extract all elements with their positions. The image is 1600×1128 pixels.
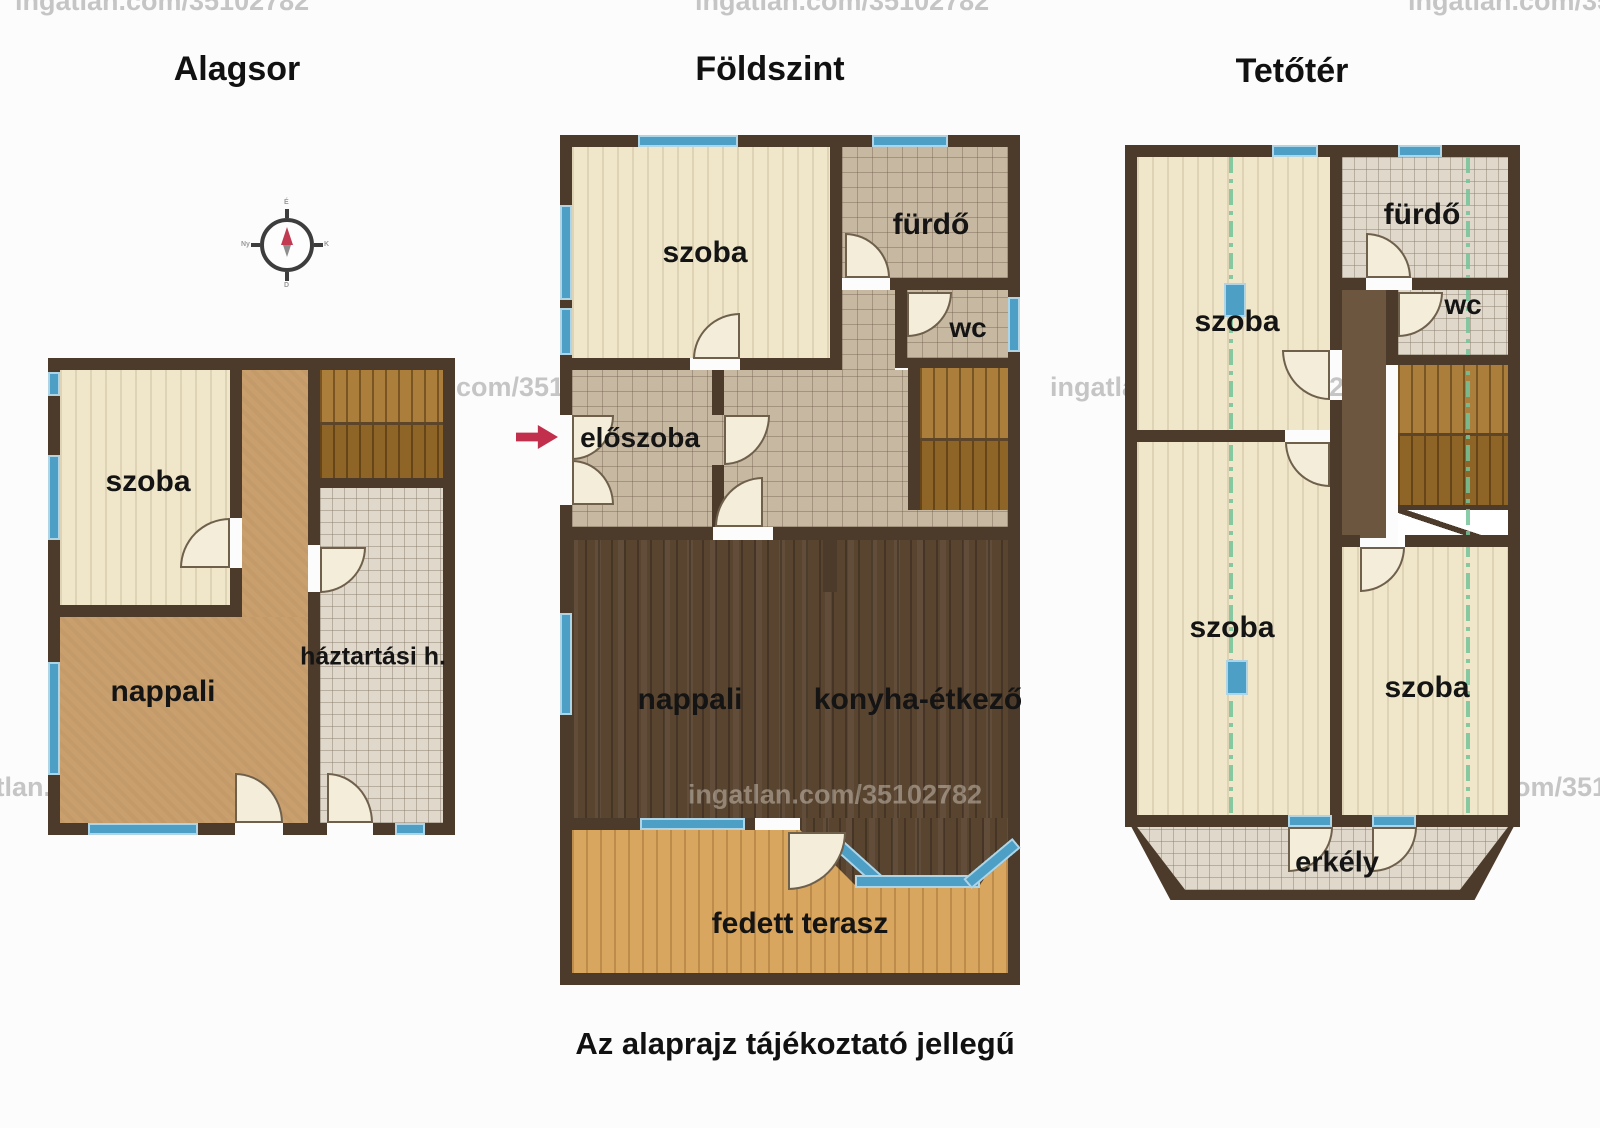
room-label-szoba: szoba	[1189, 611, 1274, 645]
landing	[1342, 290, 1386, 538]
wall	[1330, 290, 1342, 350]
compass-tick-west	[251, 243, 260, 247]
wall	[823, 540, 837, 592]
compass-label-south: D	[284, 282, 289, 289]
window	[395, 823, 425, 835]
wall	[1125, 145, 1520, 157]
wall	[1386, 355, 1508, 365]
wall	[48, 358, 455, 370]
room-label-haztartasi: háztartási h.	[300, 643, 446, 672]
window	[1398, 145, 1442, 157]
wall	[1008, 135, 1020, 985]
stairs-upper-flight	[1398, 365, 1508, 433]
plan-title-foldszint: Földszint	[630, 50, 910, 89]
roof-window	[1226, 660, 1248, 695]
wall	[773, 527, 1020, 540]
wall	[560, 527, 713, 540]
window	[1008, 297, 1020, 352]
wall	[308, 478, 455, 488]
plan-alagsor: szoba nappali háztartási h.	[48, 358, 455, 835]
window	[48, 662, 60, 775]
room-label-konyha: konyha-étkező	[814, 683, 1022, 717]
wall	[1125, 145, 1137, 827]
compass-tick-east	[314, 243, 323, 247]
window	[88, 823, 198, 835]
wall	[1330, 535, 1360, 547]
wall	[908, 368, 920, 510]
window	[560, 308, 572, 355]
wall	[740, 358, 830, 370]
compass-label-east: K	[324, 241, 329, 248]
window	[1272, 145, 1318, 157]
watermark: ingatlan.com/35102782	[15, 0, 309, 17]
wall	[1416, 815, 1508, 827]
wall	[1508, 145, 1520, 827]
wall	[308, 592, 320, 823]
compass-needle-north	[281, 227, 293, 245]
wall	[198, 823, 235, 835]
wall	[308, 370, 320, 545]
wall	[560, 818, 640, 830]
wall	[1125, 430, 1285, 442]
window	[640, 818, 745, 830]
disclaimer-text: Az alaprajz tájékoztató jellegű	[400, 1026, 1190, 1062]
room-label-nappali: nappali	[637, 683, 742, 717]
stairs-upper-flight	[320, 370, 443, 422]
plan-title-alagsor: Alagsor	[97, 50, 377, 89]
wall	[48, 823, 88, 835]
wall	[712, 370, 724, 415]
balcony-door-threshold	[1288, 815, 1332, 827]
wall	[425, 823, 455, 835]
room-label-wc: wc	[1444, 289, 1481, 321]
window	[560, 613, 572, 715]
wall	[1332, 815, 1372, 827]
room-label-terasz: fedett terasz	[712, 907, 889, 941]
wall	[60, 605, 242, 617]
plan-tetoter: szoba fürdő wc szoba szoba erkély	[1125, 145, 1520, 905]
wall	[1405, 535, 1508, 547]
plan-title-tetoter: Tetőtér	[1152, 52, 1432, 91]
wall	[890, 278, 1008, 290]
wall	[1386, 290, 1398, 355]
window	[48, 372, 60, 396]
room-label-nappali: nappali	[110, 675, 215, 709]
compass-icon: É D Ny K	[260, 218, 314, 272]
room-label-furdo: fürdő	[893, 208, 970, 242]
compass-label-west: Ny	[241, 241, 250, 248]
floor-plan-page: ingatlan.com/35102782 ingatlan.com/35102…	[0, 0, 1600, 1128]
watermark: ingatlan.com/35102782	[1408, 0, 1600, 17]
wall	[560, 135, 1020, 147]
stairs-lower-flight	[320, 422, 443, 478]
wall	[1125, 815, 1288, 827]
wall	[560, 973, 1020, 985]
stairs-lower-flight	[1398, 433, 1508, 505]
room-nappali-konyha	[572, 540, 1008, 818]
window	[560, 205, 572, 300]
room-label-wc: wc	[949, 312, 986, 344]
room-label-szoba: szoba	[1194, 305, 1279, 339]
window	[638, 135, 738, 147]
attic-height-line	[1466, 157, 1470, 815]
wall	[1330, 157, 1342, 290]
wall	[560, 358, 690, 370]
compass-label-north: É	[284, 199, 289, 206]
room-label-szoba: szoba	[105, 465, 190, 499]
room-label-szoba: szoba	[662, 236, 747, 270]
stairs-upper-flight	[920, 368, 1008, 438]
window	[872, 135, 948, 147]
plan-foldszint: ingatlan.com/35102782 szoba fürdő wc elő…	[560, 135, 1020, 985]
wall	[895, 290, 907, 358]
wall	[283, 823, 327, 835]
compass-needle-south	[283, 245, 291, 257]
room-label-furdo: fürdő	[1384, 198, 1461, 232]
wall	[1330, 442, 1342, 815]
window	[48, 455, 60, 540]
room-label-erkely: erkély	[1295, 847, 1379, 880]
wall	[1342, 278, 1366, 290]
watermark: ingatlan.com/35102782	[695, 0, 989, 17]
wall	[443, 358, 455, 835]
attic-height-line	[1229, 157, 1233, 815]
wall	[560, 505, 572, 985]
wall	[1330, 400, 1342, 442]
entrance-arrow-icon	[516, 425, 558, 449]
balcony-door-threshold	[1372, 815, 1416, 827]
wall	[830, 147, 842, 370]
room-label-eloszoba: előszoba	[580, 422, 700, 454]
compass-tick-north	[285, 209, 289, 218]
window	[855, 875, 980, 888]
stairs-lower-flight	[920, 438, 1008, 510]
compass-tick-south	[285, 272, 289, 281]
room-nappali-corridor	[242, 370, 308, 617]
watermark: ingatlan.com/35102782	[688, 780, 982, 811]
wall	[895, 358, 1008, 368]
wall	[373, 823, 395, 835]
room-label-szoba: szoba	[1384, 671, 1469, 705]
wall	[230, 370, 242, 518]
corridor-strip	[842, 290, 895, 370]
wall	[745, 818, 755, 830]
